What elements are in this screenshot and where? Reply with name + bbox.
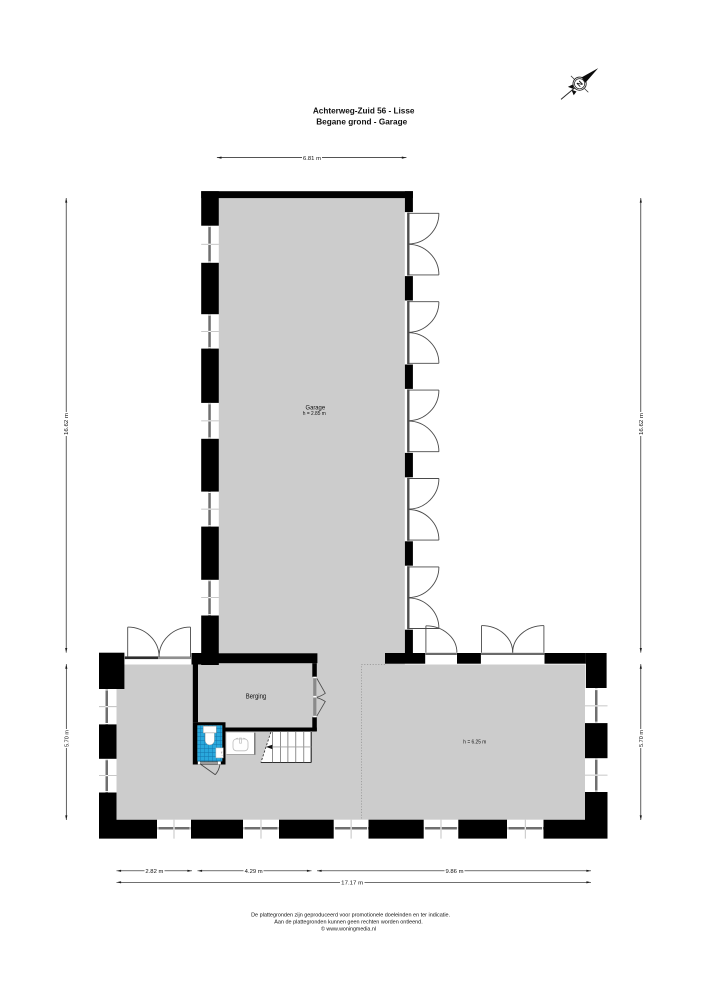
svg-text:Begane grond - Garage: Begane grond - Garage bbox=[316, 117, 407, 127]
svg-text:4.29 m: 4.29 m bbox=[245, 869, 263, 875]
svg-text:5.70 m: 5.70 m bbox=[639, 730, 645, 747]
svg-text:De plattegronden zijn geproduc: De plattegronden zijn geproduceerd voor … bbox=[251, 913, 450, 919]
svg-text:17.17 m: 17.17 m bbox=[341, 880, 363, 886]
svg-text:2.82 m: 2.82 m bbox=[145, 869, 163, 875]
svg-text:© www.woningmedia.nl: © www.woningmedia.nl bbox=[321, 926, 376, 933]
svg-text:9.86 m: 9.86 m bbox=[446, 869, 464, 875]
svg-text:16.62 m: 16.62 m bbox=[64, 413, 70, 435]
svg-text:6.81 m: 6.81 m bbox=[303, 156, 321, 162]
svg-text:Berging: Berging bbox=[246, 694, 267, 701]
svg-text:h = 2.85 m: h = 2.85 m bbox=[303, 411, 326, 417]
svg-text:5.70 m: 5.70 m bbox=[64, 730, 70, 747]
svg-text:h = 6.25 m: h = 6.25 m bbox=[463, 740, 486, 746]
svg-text:Achterweg-Zuid 56 - Lisse: Achterweg-Zuid 56 - Lisse bbox=[313, 106, 415, 116]
svg-text:Aan de plattegronden kunnen ge: Aan de plattegronden kunnen geen rechten… bbox=[274, 920, 423, 926]
svg-text:16.62 m: 16.62 m bbox=[639, 413, 645, 435]
